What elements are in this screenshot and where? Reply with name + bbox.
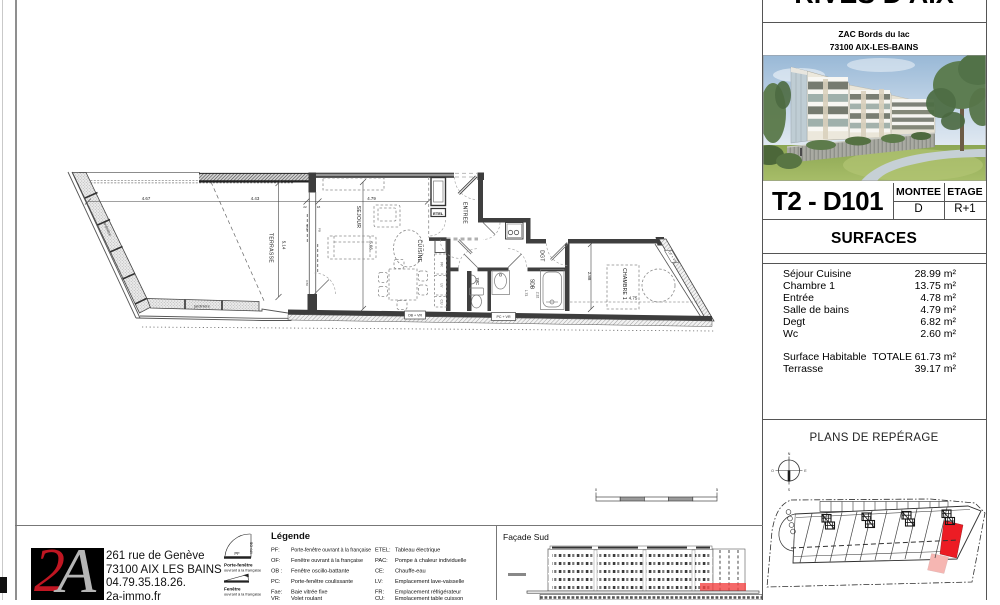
svg-text:OB + VR: OB + VR <box>408 314 423 318</box>
svg-text:Emplacement réfrigérateur: Emplacement réfrigérateur <box>395 590 461 596</box>
svg-text:ouvrant à la française: ouvrant à la française <box>224 568 261 573</box>
svg-text:CU: CU <box>440 300 444 305</box>
svg-text:CUISINE: CUISINE <box>416 239 422 262</box>
svg-text:5.14: 5.14 <box>282 241 287 250</box>
svg-text:4.67: 4.67 <box>142 196 151 201</box>
svg-text:PAC:: PAC: <box>375 558 388 564</box>
svg-text:PC + VR: PC + VR <box>496 315 510 319</box>
svg-text:5.66: 5.66 <box>369 241 374 250</box>
svg-text:S: S <box>788 488 791 492</box>
svg-text:N: N <box>788 452 791 456</box>
svg-text:PB: PB <box>318 228 322 232</box>
svg-text:2.32: 2.32 <box>536 292 540 299</box>
svg-text:5: 5 <box>716 487 719 492</box>
svg-text:Fenêtre ouvrant à la française: Fenêtre ouvrant à la française <box>291 558 363 564</box>
svg-text:FR: FR <box>440 262 444 267</box>
svg-text:CF + VR: CF + VR <box>667 250 677 264</box>
svg-text:CE:: CE: <box>375 569 385 575</box>
svg-text:SEJOUR: SEJOUR <box>355 206 361 229</box>
svg-text:Pompe à chaleur individuelle: Pompe à chaleur individuelle <box>395 558 466 564</box>
svg-text:CHAMBRE 1: CHAMBRE 1 <box>621 268 627 300</box>
svg-text:ETEL: ETEL <box>433 211 444 216</box>
svg-text:DGT: DGT <box>539 250 545 261</box>
svg-text:1.73: 1.73 <box>524 290 528 297</box>
svg-text:Tableau électrique: Tableau électrique <box>395 548 440 554</box>
svg-text:Emplacement table cuisson: Emplacement table cuisson <box>395 596 463 600</box>
svg-text:SDB: SDB <box>529 279 535 290</box>
svg-text:TERRASSE: TERRASSE <box>268 233 274 263</box>
svg-text:Fae:: Fae: <box>271 590 283 596</box>
svg-text:4.43: 4.43 <box>251 196 260 201</box>
svg-text:VR+OB: VR+OB <box>250 541 254 554</box>
svg-text:WC: WC <box>475 278 480 286</box>
svg-text:O: O <box>771 469 774 473</box>
svg-text:Porte-fenêtre coulissante: Porte-fenêtre coulissante <box>291 579 353 585</box>
svg-text:ENTREE: ENTREE <box>462 202 468 224</box>
svg-text:Chauffe-eau: Chauffe-eau <box>395 569 426 575</box>
svg-text:VR:: VR: <box>271 596 281 600</box>
svg-text:22: 22 <box>303 205 307 209</box>
svg-text:Baie vitrée fixe: Baie vitrée fixe <box>291 590 328 596</box>
svg-text:OB :: OB : <box>271 569 283 575</box>
svg-text:PC:: PC: <box>271 579 281 585</box>
svg-text:CU:: CU: <box>375 596 385 600</box>
svg-text:4.75: 4.75 <box>629 296 638 301</box>
svg-text:Emplacement lave-vaisselle: Emplacement lave-vaisselle <box>395 579 464 585</box>
svg-text:jardinière: jardinière <box>193 305 210 309</box>
svg-text:E: E <box>804 469 807 473</box>
svg-text:18: 18 <box>317 205 321 209</box>
svg-text:OF:: OF: <box>271 558 281 564</box>
svg-text:0.50: 0.50 <box>305 225 309 231</box>
svg-text:FR:: FR: <box>375 590 384 596</box>
svg-text:PF: PF <box>234 551 240 556</box>
svg-text:0.50: 0.50 <box>305 280 309 286</box>
svg-text:LV: LV <box>440 284 444 289</box>
svg-text:Fenêtre oscillo-battante: Fenêtre oscillo-battante <box>291 569 349 575</box>
svg-text:2.88: 2.88 <box>587 272 592 281</box>
svg-text:Volet roulant: Volet roulant <box>291 596 322 600</box>
svg-text:4.79: 4.79 <box>367 196 376 201</box>
svg-text:ouvrant à la française: ouvrant à la française <box>224 592 261 597</box>
svg-text:jardinière: jardinière <box>102 220 112 237</box>
svg-text:0: 0 <box>595 487 598 492</box>
svg-text:PF:: PF: <box>271 548 280 554</box>
svg-text:LV:: LV: <box>375 579 383 585</box>
svg-text:Porte-fenêtre ouvrant à la fra: Porte-fenêtre ouvrant à la française <box>291 548 371 554</box>
svg-text:ETEL:: ETEL: <box>375 548 391 554</box>
